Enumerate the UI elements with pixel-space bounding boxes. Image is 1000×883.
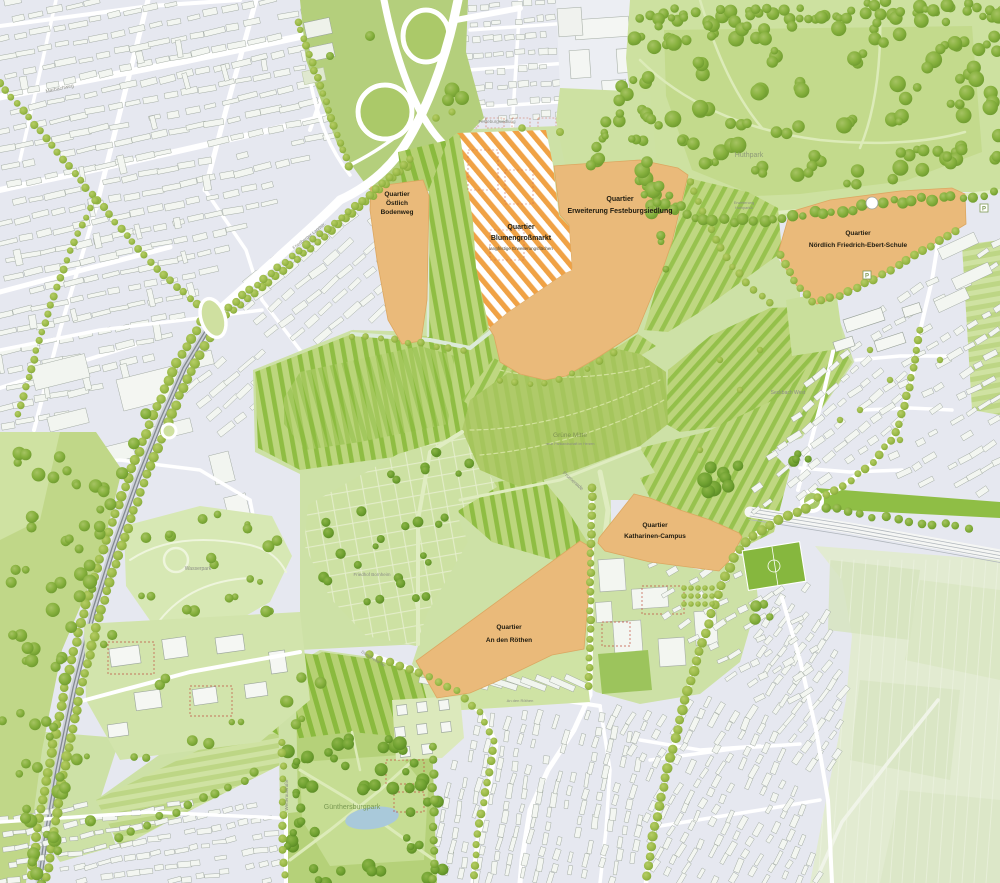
svg-text:Östlich: Östlich: [386, 198, 408, 207]
svg-text:Grüne Mitte: Grüne Mitte: [553, 432, 587, 439]
svg-text:Blumengroßmarkt: Blumengroßmarkt: [491, 235, 552, 242]
svg-text:Quartier: Quartier: [496, 624, 522, 631]
svg-text:Huthpark: Huthpark: [735, 152, 764, 159]
svg-text:Quartier: Quartier: [642, 522, 668, 529]
svg-text:An den Röthen: An den Röthen: [507, 698, 534, 703]
svg-text:HuthparkA: HuthparkA: [735, 206, 753, 210]
svg-text:Quartier: Quartier: [507, 224, 535, 231]
svg-text:An den Röthen: An den Röthen: [486, 637, 532, 644]
svg-text:neue Parklandschaft im Herzen: neue Parklandschaft im Herzen: [546, 442, 595, 446]
svg-text:Erweiterung: Erweiterung: [734, 201, 754, 205]
svg-text:langfristige Erweiterungsfläch: langfristige Erweiterungsflächen: [489, 246, 553, 251]
svg-text:P: P: [982, 207, 986, 213]
svg-text:Seckbach West: Seckbach West: [771, 390, 806, 396]
svg-text:Quartier: Quartier: [384, 191, 410, 198]
svg-text:Wasserpark: Wasserpark: [185, 566, 212, 572]
svg-text:P: P: [865, 274, 869, 280]
svg-text:Friedhof Bornheim: Friedhof Bornheim: [353, 572, 390, 577]
svg-text:Festeburgsiedlung: Festeburgsiedlung: [478, 119, 516, 124]
svg-text:Bodenweg: Bodenweg: [381, 209, 414, 216]
svg-text:Nördlich Friedrich-Ebert-Schul: Nördlich Friedrich-Ebert-Schule: [809, 242, 908, 249]
svg-text:Quartier: Quartier: [606, 196, 634, 203]
svg-text:Günthersburgpark: Günthersburgpark: [324, 804, 381, 811]
svg-text:Wetteraustraße: Wetteraustraße: [284, 779, 289, 810]
svg-text:Erweiterung Festeburgsiedlung: Erweiterung Festeburgsiedlung: [567, 208, 672, 215]
svg-text:Quartier: Quartier: [845, 230, 871, 237]
svg-text:Katharinen-Campus: Katharinen-Campus: [624, 533, 686, 540]
